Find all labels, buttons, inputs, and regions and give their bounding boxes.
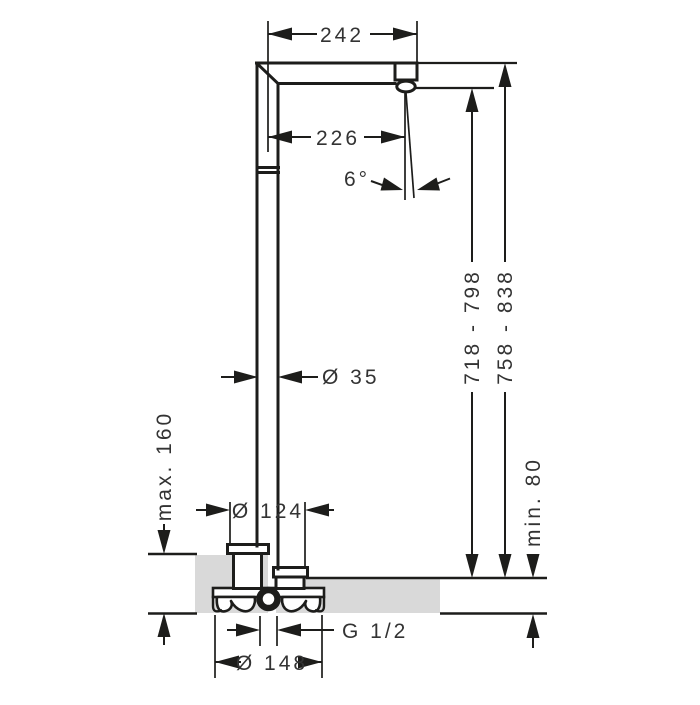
arrowhead-down	[527, 554, 540, 578]
outlet-aerator	[397, 81, 415, 92]
arrowhead-down	[466, 554, 479, 578]
escutcheon-left-half	[228, 545, 269, 589]
min-floor-buildup-label: min. 80	[522, 457, 545, 547]
arrowhead-left-point	[417, 178, 440, 191]
max-floor-buildup-label: max. 160	[153, 411, 176, 521]
arrowhead-right-point	[206, 504, 230, 517]
rough-in-set	[213, 588, 324, 611]
dim-rough-in-diameter: Ø 148	[215, 615, 322, 678]
arrowhead-up	[499, 63, 512, 87]
spray-angle-line	[406, 93, 414, 198]
fixture-dimension-drawing: 242 226 6° Ø 35 718 - 798 758 - 838	[0, 0, 700, 700]
arrowhead-left	[268, 28, 292, 41]
arrowhead-down	[158, 530, 171, 554]
dim-outlet-height: 718 - 798	[414, 88, 494, 578]
arrowhead-left-point	[278, 371, 302, 384]
arrowhead-right-point	[381, 178, 404, 191]
rough-in-diameter-label: Ø 148	[236, 652, 308, 675]
dim-max-floor-buildup: max. 160	[153, 411, 176, 645]
arrowhead-left-point	[305, 504, 329, 517]
arrowhead-down	[499, 554, 512, 578]
arrowhead-up	[527, 614, 540, 638]
outlet-height-label: 718 - 798	[461, 269, 484, 385]
arrowhead-right-point	[236, 624, 260, 637]
overall-height-label: 758 - 838	[494, 269, 517, 385]
thread-size-label: G 1/2	[342, 620, 408, 643]
riser-diameter-label: Ø 35	[322, 366, 380, 389]
dim-226-label: 226	[316, 127, 360, 150]
arrowhead-right-point	[234, 371, 258, 384]
arrowhead-right	[393, 28, 417, 41]
arrowhead-right	[381, 131, 405, 144]
dim-242-label: 242	[320, 24, 364, 47]
spray-angle-label: 6°	[344, 168, 370, 191]
arrowhead-up	[158, 613, 171, 637]
technical-drawing-page: 242 226 6° Ø 35 718 - 798 758 - 838	[0, 0, 700, 700]
dim-spray-angle: 6°	[344, 168, 450, 191]
supply-connection-ring	[260, 590, 278, 608]
spray-direction-lines	[405, 93, 414, 200]
escutcheon-left-skirt	[234, 554, 262, 589]
dim-connection-thread: G 1/2	[227, 616, 408, 646]
arrowhead-left	[268, 131, 292, 144]
outlet-box	[395, 63, 417, 80]
dim-outlet-reach: 226	[268, 127, 405, 150]
base-diameter-label: Ø 124	[232, 500, 304, 523]
escutcheon-right-half	[274, 568, 308, 589]
dim-min-floor-buildup: min. 80	[522, 457, 545, 648]
arrowhead-left-point	[277, 624, 301, 637]
escutcheon-right-skirt	[276, 577, 304, 589]
arrowhead-up	[466, 88, 479, 112]
leader-line-right	[436, 179, 450, 185]
dim-riser-diameter: Ø 35	[221, 366, 380, 389]
